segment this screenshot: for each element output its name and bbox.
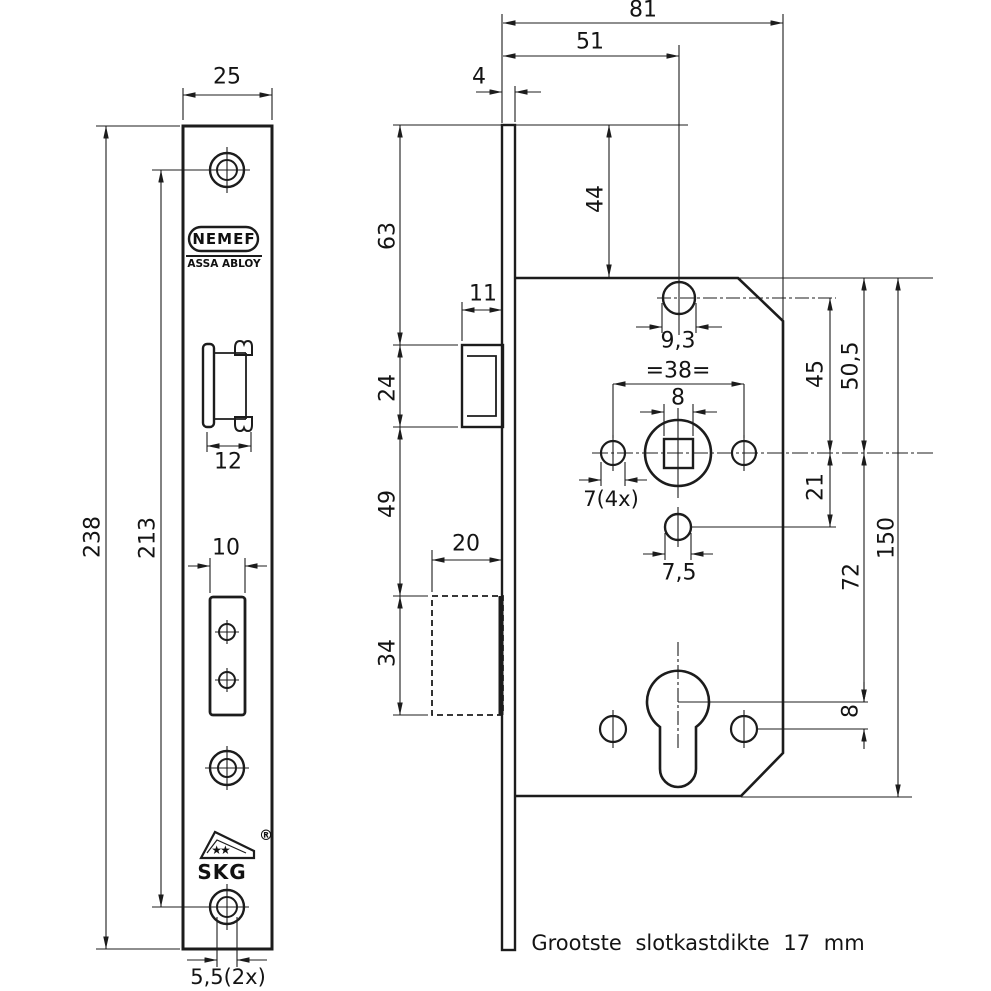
dim-label-plate-width: 25 [213, 65, 241, 90]
dim-label-faceplate-thk: 4 [472, 65, 486, 90]
dim-label-latch-to-bolt: 49 [376, 490, 401, 518]
side-faceplate [502, 125, 515, 950]
latch-cutout [203, 341, 252, 431]
dim-25-lines [183, 88, 272, 120]
dim-label-45: 45 [804, 360, 829, 388]
right-extension-lines [738, 278, 933, 797]
dim-label-21: 21 [804, 473, 829, 501]
spindle-follower [592, 408, 934, 498]
drawing-note: Grootste slotkastdikte 17 mm [531, 931, 864, 955]
dim-label-hole-75: 7,5 [662, 561, 697, 586]
dim-10-lines [188, 558, 267, 593]
dim-11-lines [462, 302, 502, 341]
top-cylinder-hole [657, 45, 836, 335]
dim-label-latch-depth: 11 [469, 282, 497, 307]
bottom-screw-hole [152, 884, 249, 930]
assa-abloy-text: ASSA ABLOY [187, 258, 260, 270]
dim-label-latch-slot: 12 [214, 450, 242, 475]
dim-label-follower-span: =38= [646, 359, 711, 384]
dim-label-bolt-height: 34 [376, 639, 401, 667]
dim-label-505: 50,5 [839, 342, 864, 391]
dim-label-bolt-slot: 10 [212, 536, 240, 561]
euro-cylinder-hole [647, 642, 868, 787]
dim-label-plate-height: 238 [81, 516, 106, 558]
dim-label-case-height: 150 [875, 517, 900, 559]
dim-label-top-to-latch: 63 [376, 222, 401, 250]
registered-icon: ® [259, 828, 273, 844]
drawing-linework [0, 0, 991, 991]
dim-label-case-width: 81 [629, 0, 657, 23]
dim-label-backset: 51 [576, 30, 604, 55]
lock-case-outline [515, 278, 783, 796]
technical-drawing-mortise-lock: 25 238 213 12 10 5,5(2x) NEMEF ASSA ABLO… [0, 0, 991, 991]
dim-label-latch-height: 24 [376, 374, 401, 402]
skg-logo-text: SKG [197, 860, 246, 884]
dim-label-spindle-square: 8 [671, 386, 685, 411]
deadbolt-cutout [210, 597, 245, 715]
top-dims [476, 14, 783, 321]
dim-label-top-to-case: 44 [584, 185, 609, 213]
left-extension-lines [393, 125, 688, 715]
latch-bolt-side [462, 345, 503, 427]
cylinder-screw-holes [600, 710, 868, 748]
dim-label-top-hole-dia: 9,3 [661, 329, 696, 354]
dim-label-72: 72 [840, 563, 865, 591]
dim-label-screw-spacing: 213 [136, 517, 161, 559]
dim-label-bolt-depth: 20 [452, 532, 480, 557]
dim-label-8-right: 8 [839, 704, 864, 718]
top-screw-hole [152, 147, 250, 193]
nemef-logo-text: NEMEF [192, 230, 255, 248]
deadbolt-thrown-dashed [432, 596, 503, 715]
dim-label-screw-dia-4x: 7(4x) [583, 487, 639, 511]
skg-stars-icon: ★★ [211, 843, 229, 857]
middle-screw-hole [205, 746, 249, 790]
dim-label-screw-dia: 5,5(2x) [190, 965, 266, 989]
